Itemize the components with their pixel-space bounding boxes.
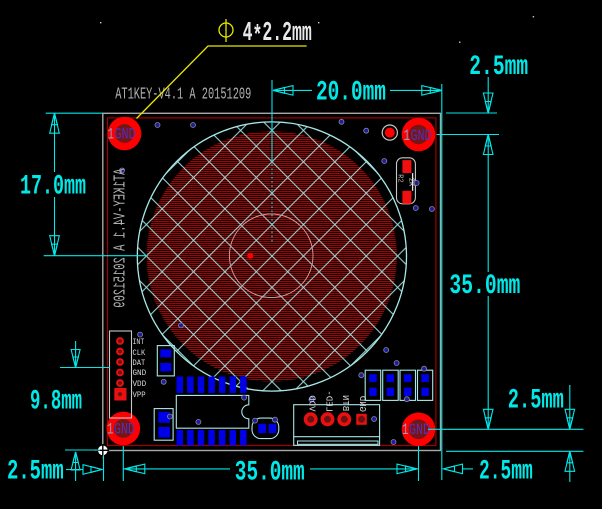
svg-text:AT1KEY-V4.1 A 20151209: AT1KEY-V4.1 A 20151209 [115, 87, 251, 105]
svg-text:BTN: BTN [340, 395, 350, 411]
svg-text:VDD: VDD [307, 395, 317, 411]
svg-text:VDD: VDD [133, 380, 147, 389]
svg-text:2.5mm: 2.5mm [469, 52, 528, 83]
svg-text:20.0mm: 20.0mm [316, 77, 386, 108]
svg-text:4*2.2mm: 4*2.2mm [243, 17, 312, 52]
svg-text:VPP: VPP [133, 391, 146, 401]
svg-text:2K: 2K [407, 178, 415, 187]
svg-text:1: 1 [402, 423, 409, 441]
svg-text:GND: GND [411, 127, 432, 145]
svg-text:GND: GND [115, 126, 136, 144]
svg-text:9.8mm: 9.8mm [30, 386, 82, 417]
svg-text:1: 1 [108, 127, 115, 145]
svg-text:35.0mm: 35.0mm [235, 458, 305, 489]
svg-text:2.5mm: 2.5mm [7, 456, 64, 488]
svg-text:CLK: CLK [133, 349, 146, 358]
svg-text:GND: GND [114, 421, 135, 439]
svg-text:AT1KEY-V4.1 A 20151209: AT1KEY-V4.1 A 20151209 [111, 169, 130, 308]
svg-text:35.0mm: 35.0mm [449, 271, 520, 302]
svg-text:INT: INT [133, 338, 145, 347]
svg-text:1: 1 [404, 128, 411, 146]
svg-text:DAT: DAT [133, 360, 146, 369]
svg-text:1: 1 [107, 422, 114, 440]
svg-text:GND: GND [409, 422, 430, 440]
svg-text:2.5mm: 2.5mm [508, 385, 564, 417]
svg-text:GND: GND [133, 369, 147, 378]
svg-text:2.5mm: 2.5mm [479, 456, 533, 488]
svg-text:R2: R2 [396, 174, 404, 182]
svg-text:GND: GND [357, 396, 367, 412]
svg-text:LED-: LED- [323, 390, 333, 412]
svg-text:17.0mm: 17.0mm [20, 171, 86, 203]
